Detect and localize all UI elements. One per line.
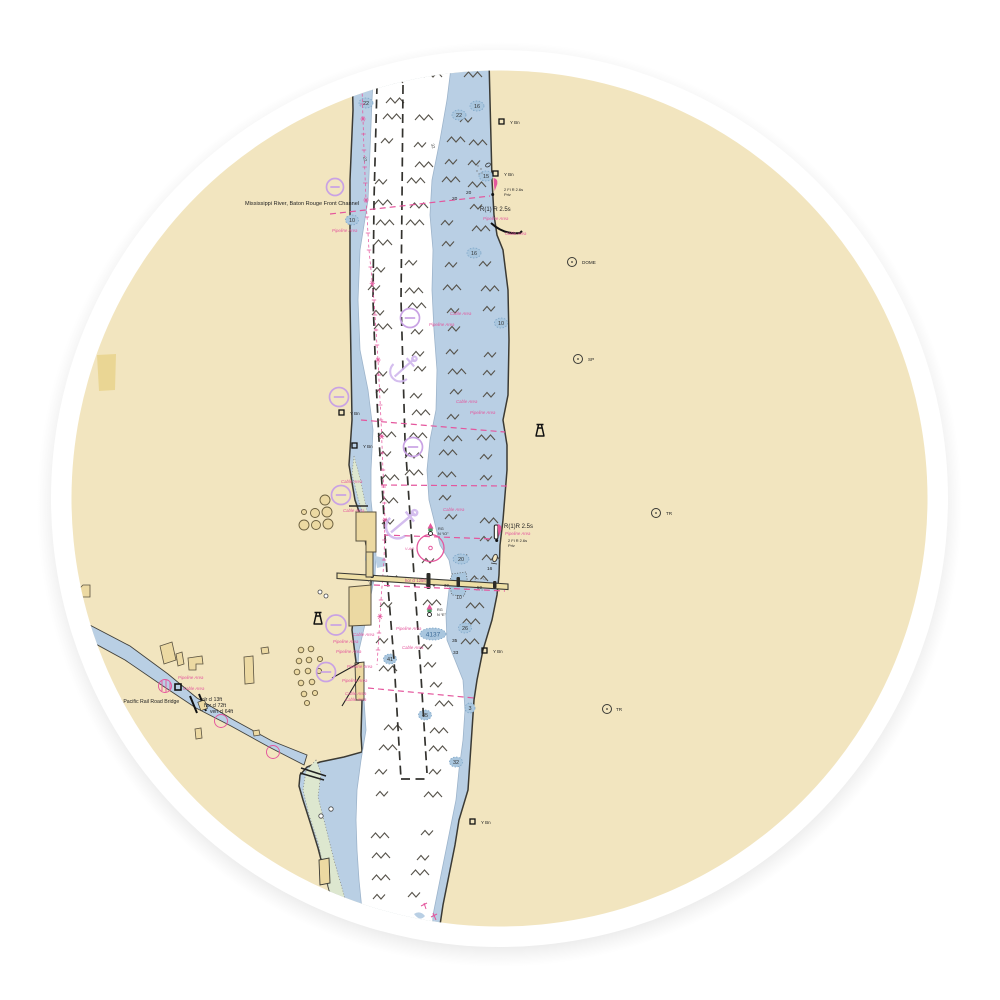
svg-text:Cable Area: Cable Area xyxy=(450,311,472,316)
svg-text:Pipeline Area: Pipeline Area xyxy=(178,675,204,680)
svg-text:35: 35 xyxy=(452,638,458,644)
svg-text:Y Bn: Y Bn xyxy=(363,444,373,449)
svg-text:Cable Area: Cable Area xyxy=(456,399,478,404)
svg-text:20: 20 xyxy=(452,196,458,202)
svg-text:Cable Area: Cable Area xyxy=(345,691,367,696)
svg-text:hor cl 125ft: hor cl 125ft xyxy=(405,578,427,583)
svg-text:Pipeline Area: Pipeline Area xyxy=(483,216,509,221)
svg-text:Priv: Priv xyxy=(508,543,515,548)
svg-text:Y Bn: Y Bn xyxy=(510,120,520,125)
svg-text:ri Pacific Rail Road Bridge: ri Pacific Rail Road Bridge xyxy=(119,699,179,705)
svg-text:R(1)R 2.5s: R(1)R 2.5s xyxy=(504,524,533,530)
svg-text:Cable Area: Cable Area xyxy=(343,508,365,513)
svg-text:N “E”: N “E” xyxy=(437,613,447,617)
svg-text:Cable Area: Cable Area xyxy=(183,686,205,691)
svg-text:Pipeline Area: Pipeline Area xyxy=(347,664,373,669)
svg-text:N “IO”: N “IO” xyxy=(438,532,449,536)
svg-text:Cable Area: Cable Area xyxy=(353,632,375,637)
svg-text:22: 22 xyxy=(456,113,462,119)
svg-text:Y Bn: Y Bn xyxy=(493,649,503,654)
svg-text:Pipeline Area: Pipeline Area xyxy=(332,228,358,233)
svg-text:30: 30 xyxy=(444,583,450,588)
svg-text:Pipeline Area: Pipeline Area xyxy=(342,678,368,683)
svg-text:V-AO: V-AO xyxy=(405,547,414,551)
svg-text:Cable Area: Cable Area xyxy=(402,645,424,650)
svg-text:26: 26 xyxy=(462,626,468,632)
svg-text:33: 33 xyxy=(453,650,459,656)
svg-text:10: 10 xyxy=(498,321,504,327)
svg-text:41: 41 xyxy=(387,657,393,663)
svg-text:20: 20 xyxy=(458,557,464,563)
svg-text:Pipeline Area: Pipeline Area xyxy=(336,649,362,654)
svg-text:TR: TR xyxy=(666,511,673,516)
svg-text:TR: TR xyxy=(616,707,623,712)
svg-text:Mississippi River, Baton Rouge: Mississippi River, Baton Rouge Front Cha… xyxy=(245,201,359,207)
svg-text:16: 16 xyxy=(474,104,480,110)
svg-text:3: 3 xyxy=(468,706,471,712)
svg-text:Y Bn: Y Bn xyxy=(350,411,360,416)
svg-text:4137: 4137 xyxy=(426,632,441,639)
svg-text:16: 16 xyxy=(487,566,493,572)
svg-text:16: 16 xyxy=(471,251,477,257)
svg-text:Cable Area: Cable Area xyxy=(443,507,465,512)
svg-text:Cable Area: Cable Area xyxy=(341,479,363,484)
svg-text:Pipeline Area: Pipeline Area xyxy=(505,531,531,536)
svg-text:RG: RG xyxy=(438,527,444,531)
svg-text:20: 20 xyxy=(466,190,472,196)
svg-text:Y Bn: Y Bn xyxy=(481,820,491,825)
svg-text:Pipeline Area: Pipeline Area xyxy=(396,626,422,631)
svg-text:Pipeline Area: Pipeline Area xyxy=(470,410,496,415)
svg-text:R(1) R 2.5s: R(1) R 2.5s xyxy=(480,207,511,213)
svg-text:10: 10 xyxy=(456,595,462,601)
svg-text:vert cl 64ft: vert cl 64ft xyxy=(210,709,234,715)
svg-text:Pipeline Area: Pipeline Area xyxy=(429,322,455,327)
svg-text:DOME: DOME xyxy=(582,260,596,265)
svg-text:Cable Area: Cable Area xyxy=(505,231,527,236)
svg-text:Cable Area: Cable Area xyxy=(345,697,367,702)
svg-text:RG: RG xyxy=(437,608,443,612)
svg-text:Y Bn: Y Bn xyxy=(504,172,514,177)
svg-text:Pipeline Area: Pipeline Area xyxy=(333,639,359,644)
svg-text:SP: SP xyxy=(588,357,594,362)
svg-text:Priv: Priv xyxy=(504,192,511,197)
svg-text:15: 15 xyxy=(483,174,489,180)
svg-text:10: 10 xyxy=(349,218,355,224)
svg-text:32: 32 xyxy=(453,760,459,766)
